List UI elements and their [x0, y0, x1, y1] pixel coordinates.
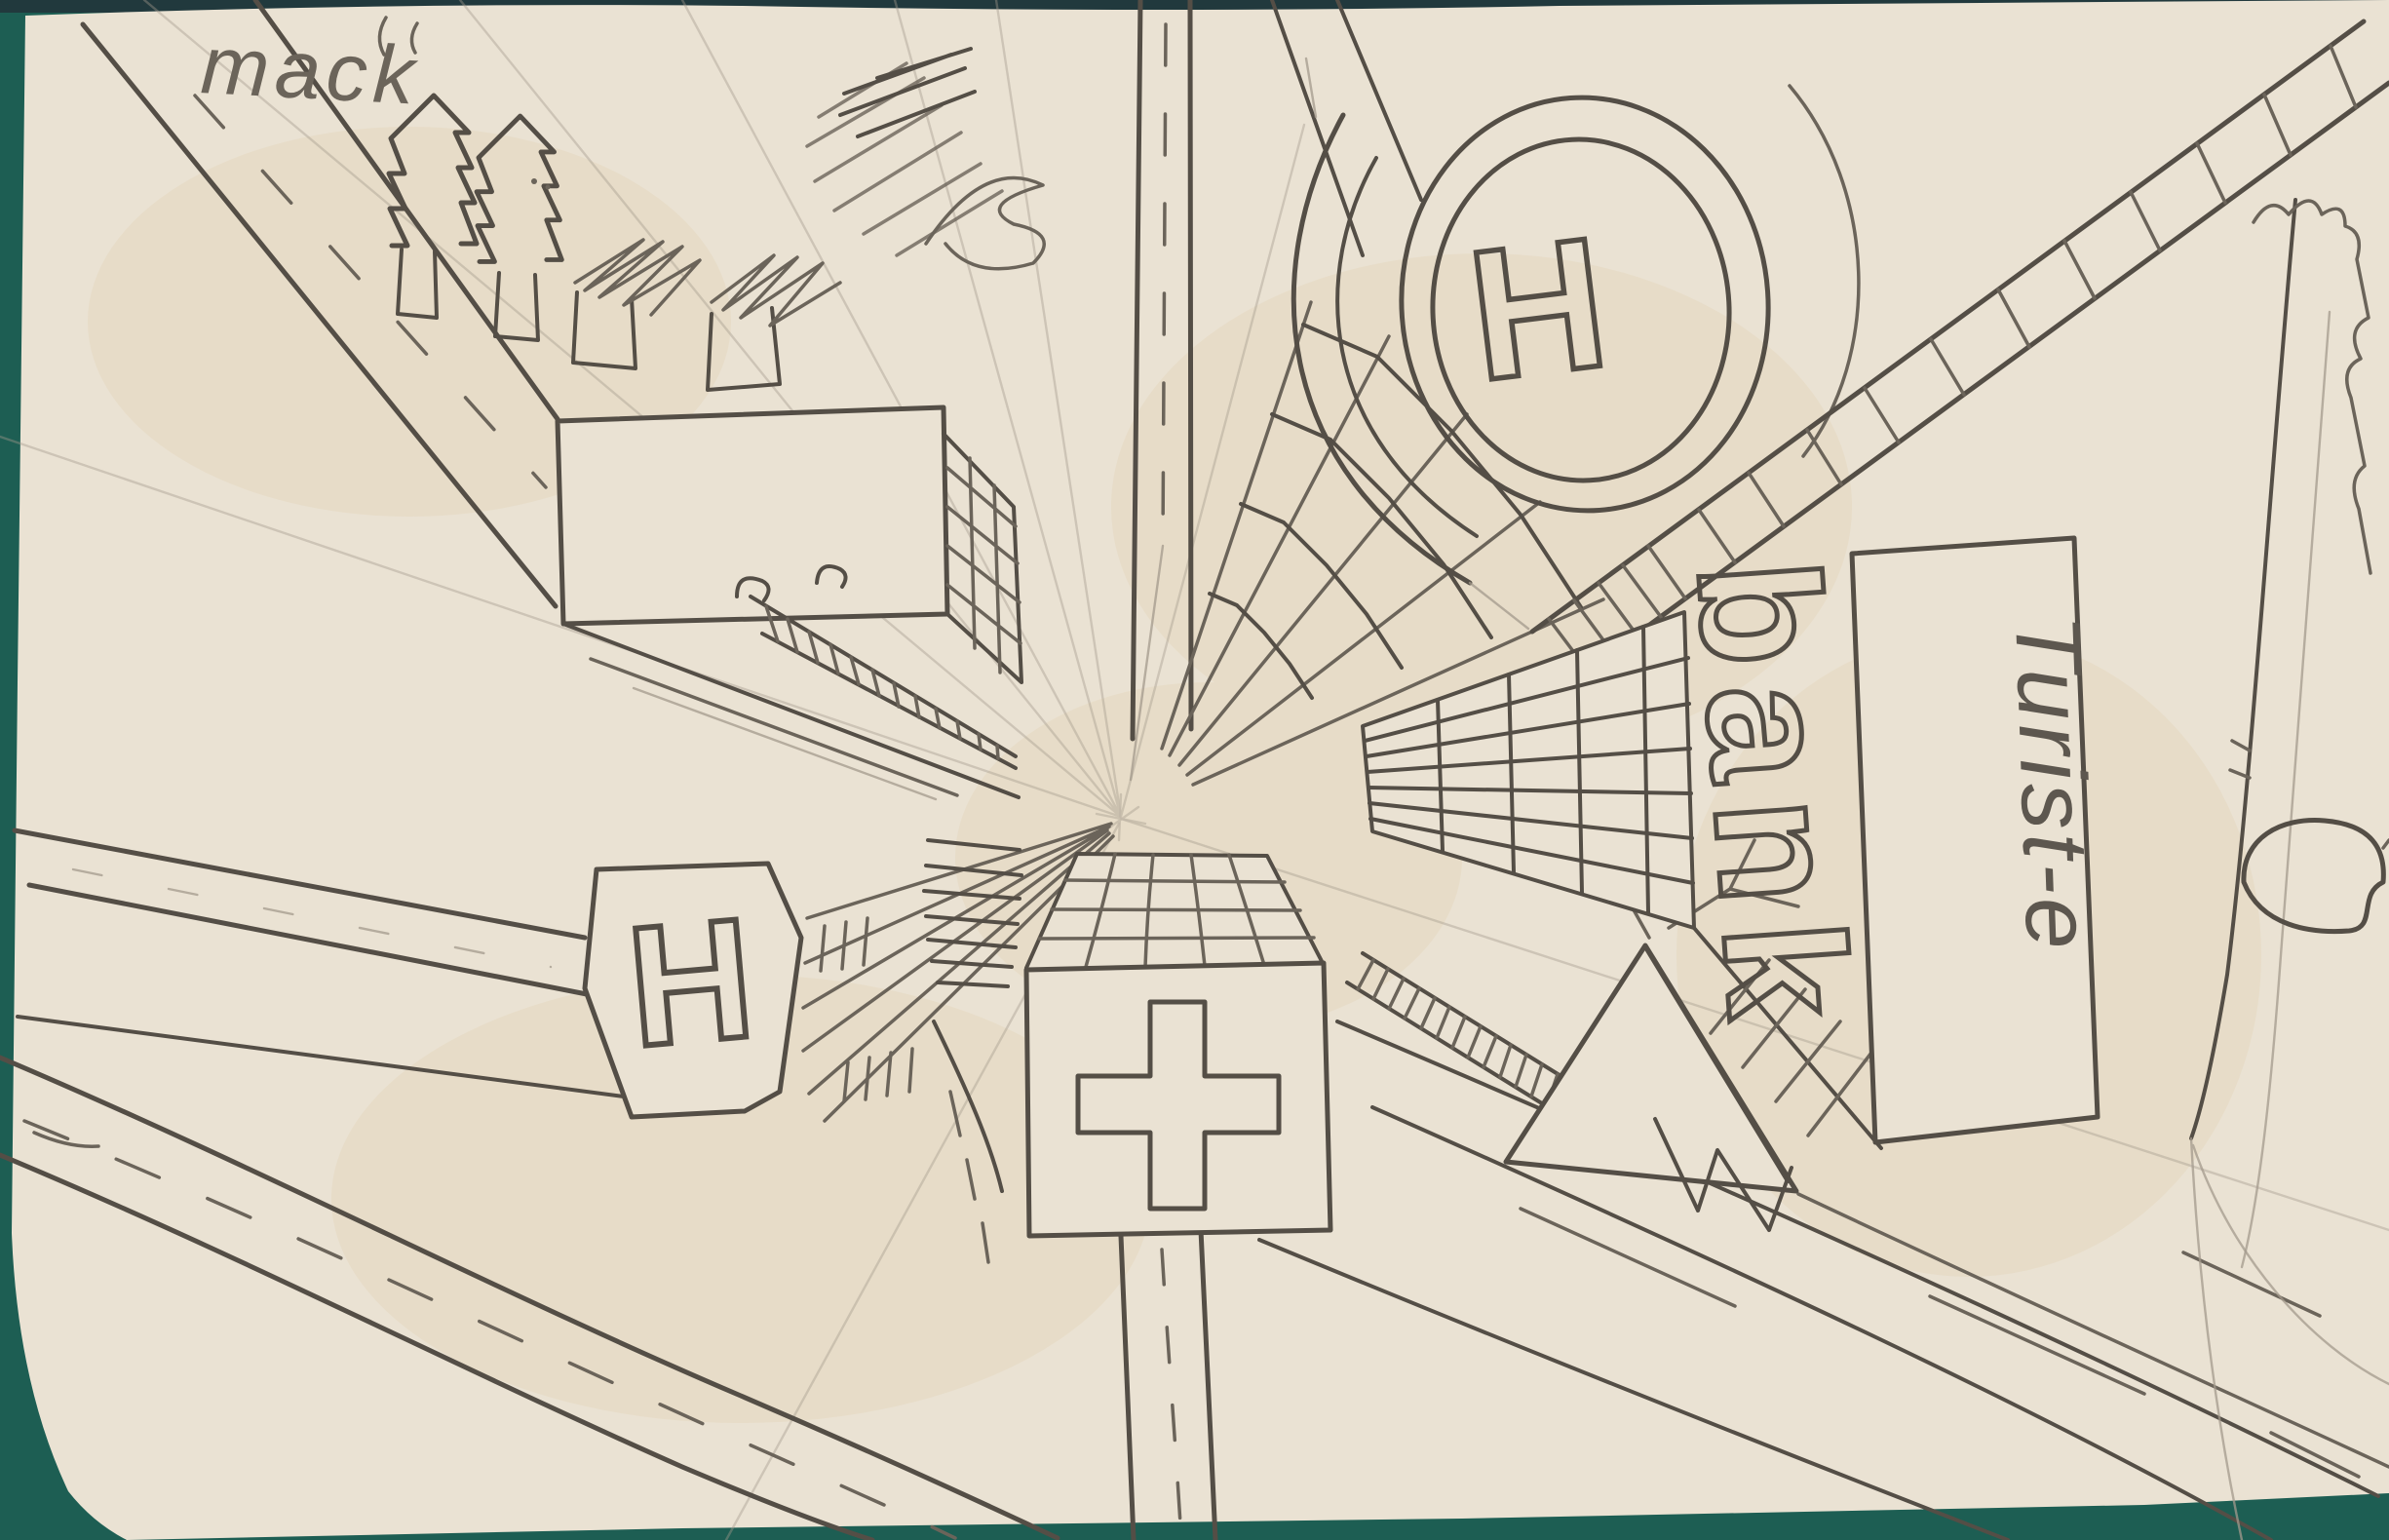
bank-sign-text: bank: [1661, 555, 1884, 1043]
heliport-sign-letter: H: [621, 883, 760, 1083]
pencil-map-drawing: mack H: [0, 0, 2389, 1540]
heliport-sign: H: [585, 864, 801, 1117]
helipad-letter: H: [1459, 199, 1617, 420]
signature-text: mack: [199, 19, 422, 122]
warehouse-front: [558, 407, 947, 624]
tourist-building: Turist-e: [1852, 538, 2110, 1142]
tourist-sign-text: Turist-e: [1995, 613, 2110, 954]
first-aid-building: [1026, 854, 1330, 1236]
photo-of-drawing: mack H: [0, 0, 2389, 1540]
